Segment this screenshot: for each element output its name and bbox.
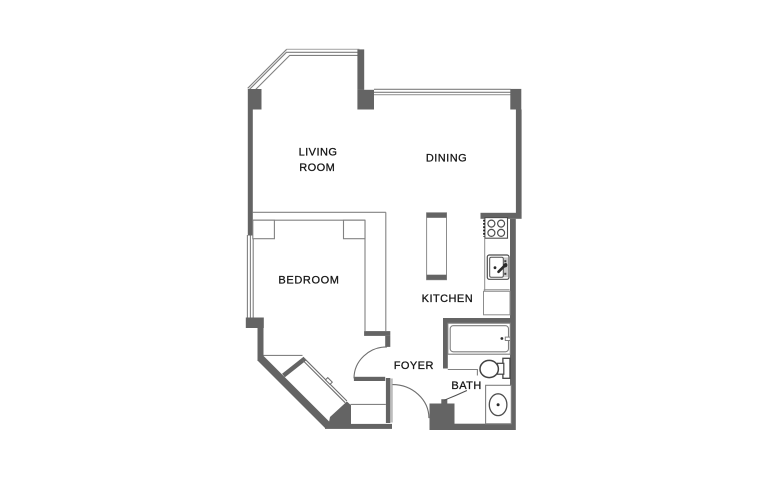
svg-text:ROOM: ROOM bbox=[299, 162, 335, 174]
svg-text:BATH: BATH bbox=[451, 380, 481, 392]
svg-text:LIVING: LIVING bbox=[299, 146, 338, 158]
svg-text:DINING: DINING bbox=[426, 153, 467, 165]
svg-text:KITCHEN: KITCHEN bbox=[422, 293, 473, 305]
svg-text:BEDROOM: BEDROOM bbox=[278, 275, 339, 287]
svg-text:FOYER: FOYER bbox=[394, 360, 434, 372]
